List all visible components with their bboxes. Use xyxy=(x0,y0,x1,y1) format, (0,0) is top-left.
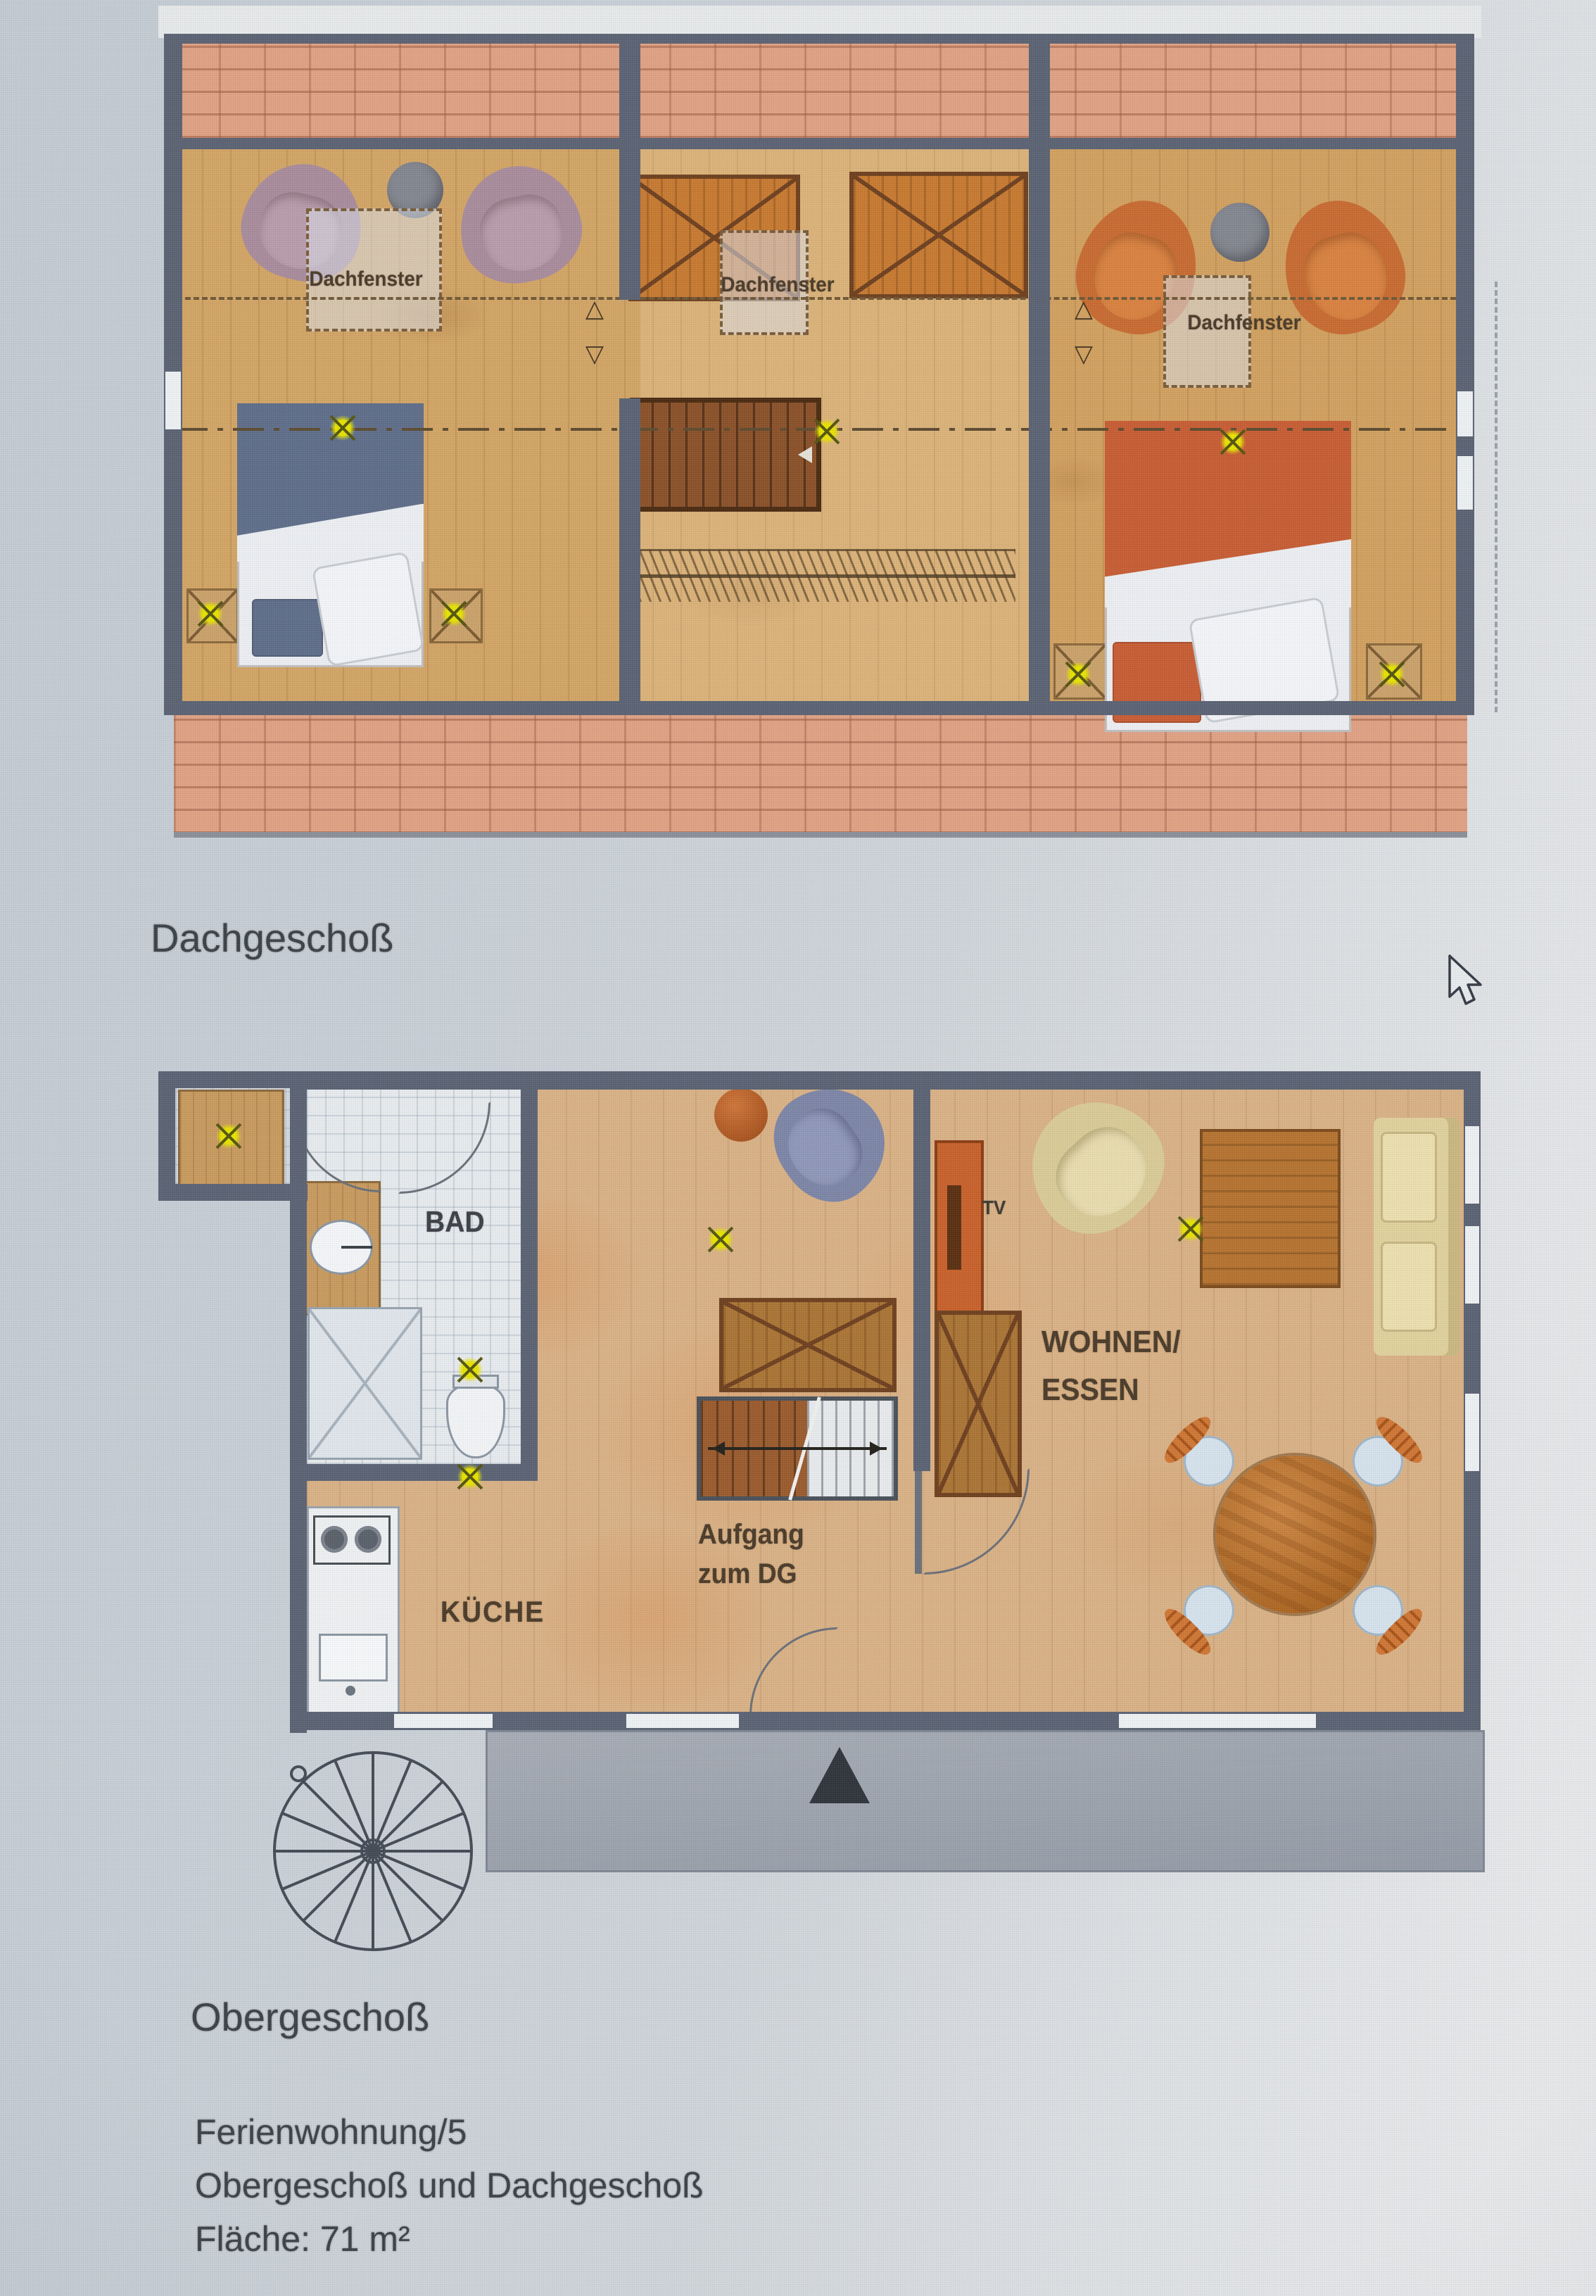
living-label-line1: WOHNEN/ xyxy=(1041,1325,1181,1360)
lamp-symbol-icon xyxy=(457,1357,483,1382)
lamp-symbol-icon xyxy=(330,415,355,441)
skylight-label: Dachfenster xyxy=(268,267,464,291)
attic-plan-title: Dachgeschoß xyxy=(151,915,394,961)
kitchen-sink-icon xyxy=(319,1634,388,1682)
attic-bottom-wall xyxy=(164,701,1473,715)
door-leaf xyxy=(915,1470,922,1574)
right-window xyxy=(1465,1226,1479,1304)
upper-staircase xyxy=(697,1396,898,1501)
attic-top-wall xyxy=(164,34,1473,44)
bottom-window xyxy=(1119,1714,1316,1728)
kitchen-label: KÜCHE xyxy=(427,1595,558,1629)
pouf-icon xyxy=(714,1088,768,1142)
stairs-note-line1: Aufgang xyxy=(698,1519,804,1551)
bathroom-right-wall xyxy=(521,1088,538,1481)
lamp-symbol-icon xyxy=(1065,662,1091,687)
double-bed-blue xyxy=(237,403,424,667)
attic-bottom-edge xyxy=(174,832,1467,838)
lamp-symbol-icon xyxy=(198,601,223,626)
spiral-staircase-icon xyxy=(269,1747,477,1955)
faucet-icon xyxy=(346,1686,355,1696)
burner xyxy=(321,1526,348,1553)
lamp-symbol-icon xyxy=(814,419,840,444)
bathroom-vanity xyxy=(302,1181,381,1316)
lamp-symbol-icon xyxy=(708,1227,733,1252)
right-wall-window-1 xyxy=(1457,391,1473,436)
bathroom-label: BAD xyxy=(425,1205,485,1239)
alcove-top-wall xyxy=(158,1071,299,1088)
roof-window-panel xyxy=(849,172,1028,298)
upper-left-wall xyxy=(290,1088,307,1733)
upper-bottom-wall xyxy=(290,1712,1481,1730)
kitchen-counter xyxy=(307,1506,400,1716)
caption-floors: Obergeschoß und Dachgeschoß xyxy=(195,2165,704,2206)
bathroom-bottom-wall xyxy=(290,1464,538,1481)
stair-direction-arrow xyxy=(708,1447,887,1450)
upper-top-wall xyxy=(290,1071,1481,1090)
double-bed-orange xyxy=(1105,421,1351,732)
height-arrows-icon xyxy=(579,296,610,367)
divider-wall-right xyxy=(1029,34,1050,715)
skylight-label: Dachfenster xyxy=(680,273,876,297)
screenshot-root: Dachfenster Dachfenster Dachfenster Dach… xyxy=(0,0,1596,2296)
chest-icon xyxy=(719,1298,897,1392)
caption-apartment: Ferienwohnung/5 xyxy=(195,2112,467,2152)
tv-label: TV xyxy=(982,1197,1006,1219)
bottom-window xyxy=(626,1714,739,1728)
divider-wall-left-upper xyxy=(619,34,640,300)
burner xyxy=(355,1526,381,1553)
left-wall-window xyxy=(165,372,181,429)
bed-pillow xyxy=(311,551,424,667)
cooktop-icon xyxy=(313,1515,391,1565)
sofa-icon xyxy=(1374,1118,1459,1356)
sofa-cushion xyxy=(1381,1242,1438,1332)
upper-plan-title: Obergeschoß xyxy=(191,1994,429,2040)
attic-left-wall xyxy=(164,34,182,715)
shower-tray xyxy=(308,1307,422,1460)
stairs-note-line2: zum DG xyxy=(698,1558,797,1590)
wood-table-icon xyxy=(1200,1129,1341,1288)
stair-railing-hatch xyxy=(630,549,1015,602)
attic-eaves-wall xyxy=(164,138,1473,149)
right-window xyxy=(1465,1126,1479,1204)
attic-right-wall xyxy=(1456,34,1474,715)
roof-outline-dashed xyxy=(1495,282,1497,712)
dining-table-icon xyxy=(1216,1456,1374,1613)
terrace-slab xyxy=(486,1730,1485,1872)
attic-bottom-brick-band xyxy=(174,715,1467,833)
bottom-window xyxy=(394,1714,493,1728)
washbasin-icon xyxy=(310,1220,373,1275)
tv-sideboard xyxy=(935,1140,984,1315)
attic-staircase xyxy=(630,398,821,512)
alcove-bottom-wall xyxy=(158,1184,308,1201)
sofa-cushion xyxy=(1381,1132,1438,1222)
lamp-symbol-icon xyxy=(457,1464,483,1489)
cursor-icon xyxy=(1444,952,1488,1012)
tv-screen-slot xyxy=(947,1185,961,1270)
knee-wall-dashed-line xyxy=(177,297,1456,300)
lamp-symbol-icon xyxy=(1220,429,1246,455)
skylight-label: Dachfenster xyxy=(1146,311,1343,335)
bed-cushion xyxy=(252,599,323,657)
right-window xyxy=(1465,1394,1479,1471)
hall-living-divider-wall xyxy=(913,1088,930,1471)
divider-wall-left-lower xyxy=(619,398,640,715)
living-label-line2: ESSEN xyxy=(1041,1373,1139,1408)
right-wall-window-2 xyxy=(1457,456,1473,510)
height-arrows-icon xyxy=(1068,296,1099,367)
side-table-icon xyxy=(1210,203,1269,262)
lamp-symbol-icon xyxy=(441,601,467,626)
attic-top-brick-band xyxy=(174,44,1467,138)
caption-area: Fläche: 71 m² xyxy=(195,2219,410,2259)
lamp-symbol-icon xyxy=(1178,1216,1203,1242)
upper-right-wall xyxy=(1464,1088,1481,1712)
lamp-symbol-icon xyxy=(1379,662,1405,687)
lamp-symbol-icon xyxy=(216,1123,241,1149)
attic-floor-plan: Dachfenster Dachfenster Dachfenster xyxy=(158,6,1481,843)
alcove-left-wall xyxy=(158,1071,175,1201)
